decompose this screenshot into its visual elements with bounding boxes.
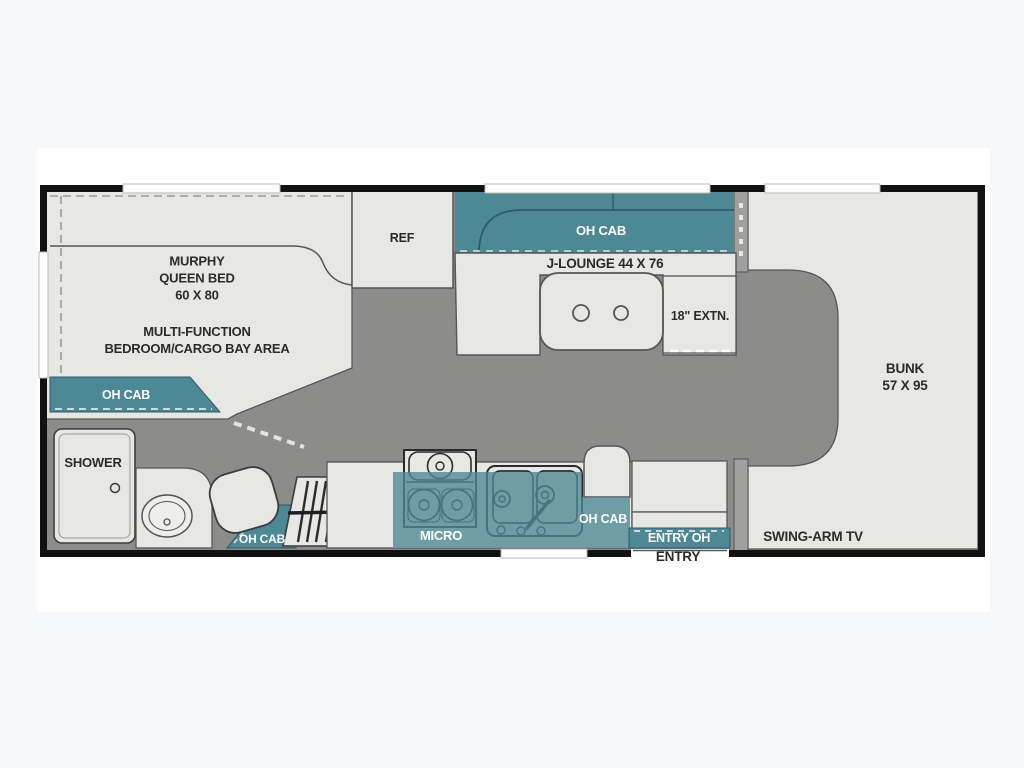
kitchen-tall-cabinet bbox=[584, 446, 630, 497]
floorplan-page: MURPHY QUEEN BED 60 X 80 MULTI-FUNCTION … bbox=[0, 0, 1024, 768]
window-left bbox=[39, 252, 48, 378]
window-top-2 bbox=[485, 184, 710, 193]
shower-stall bbox=[54, 429, 135, 543]
bedroom-overhead-cabinet bbox=[50, 377, 220, 412]
window-bottom bbox=[501, 549, 587, 558]
lounge-extension bbox=[663, 276, 736, 353]
lounge-area bbox=[455, 191, 736, 355]
entry-step-upper bbox=[632, 461, 727, 512]
floorplan-svg bbox=[0, 0, 1024, 768]
wall-right bbox=[978, 185, 985, 557]
refrigerator bbox=[352, 191, 453, 288]
lounge-table bbox=[540, 273, 663, 350]
window-top-3 bbox=[765, 184, 880, 193]
lounge-overhead-cabinet bbox=[455, 191, 734, 253]
window-top-1 bbox=[123, 184, 280, 193]
entry-step-lower bbox=[632, 512, 727, 529]
divider-wall-entry bbox=[734, 459, 748, 551]
entry-area bbox=[629, 461, 730, 548]
